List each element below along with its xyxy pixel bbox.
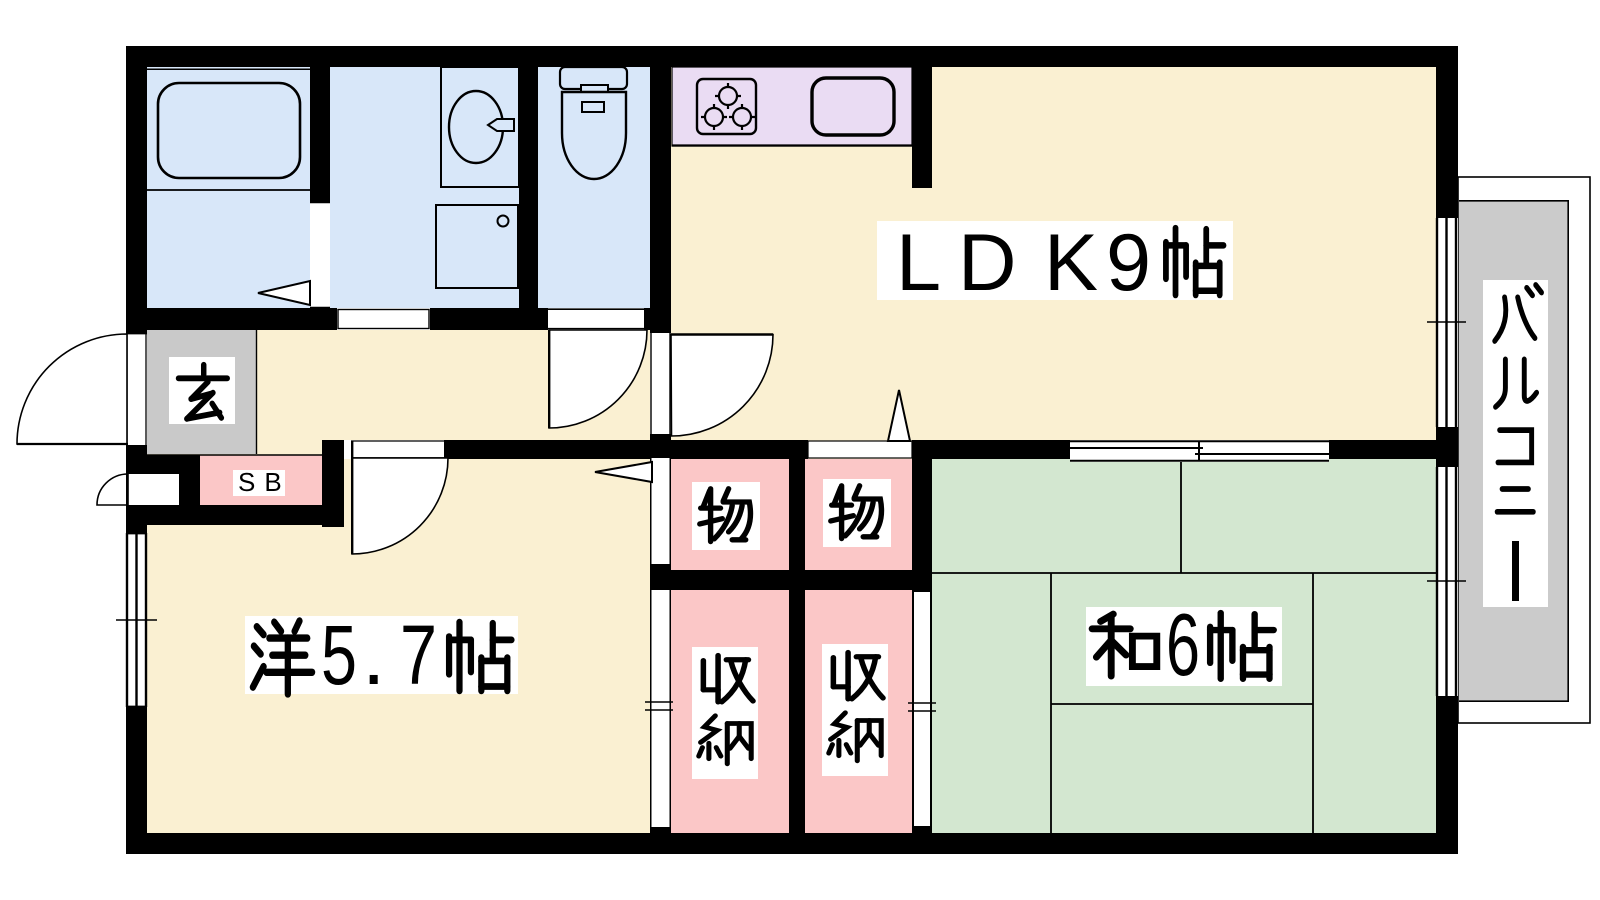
svg-text:K: K [1044,218,1098,308]
svg-text:7: 7 [400,608,437,702]
svg-text:9: 9 [1106,218,1151,308]
svg-text:.: . [362,608,385,702]
svg-text:5: 5 [321,608,357,702]
svg-text:D: D [958,218,1017,308]
svg-text:L: L [896,218,941,308]
svg-text:6: 6 [1166,595,1200,694]
svg-text:SB: SB [238,467,291,497]
